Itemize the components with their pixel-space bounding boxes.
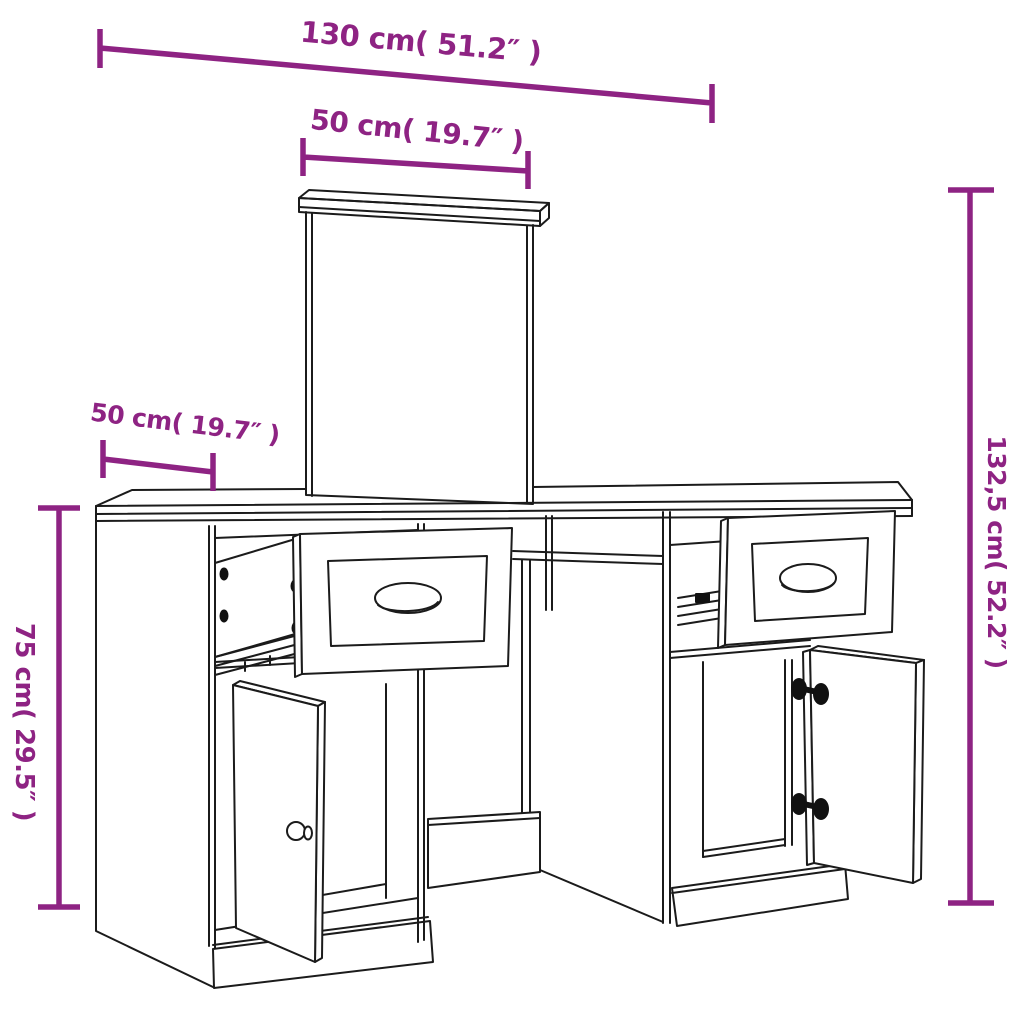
drawer-screw (221, 569, 228, 580)
left-drawer-slides (215, 634, 302, 675)
dim-table-height: 75 cm( 29.5″ ) (9, 508, 80, 907)
dim-overall-width: 130 cm( 51.2″ ) (100, 15, 712, 123)
dim-depth: 50 cm( 19.7″ ) (89, 398, 282, 491)
left-door-panel (233, 685, 318, 962)
dimension-diagram: 130 cm( 51.2″ ) 50 cm( 19.7″ ) 50 cm( 19… (0, 0, 1024, 1024)
dim-line (103, 440, 213, 491)
kneehole-apron (513, 551, 663, 564)
desktop-front-edge (96, 500, 912, 506)
floor-diagonal (540, 870, 663, 922)
desktop-center-seam (546, 516, 552, 610)
right-left-stile (663, 512, 670, 923)
diagram-canvas: 130 cm( 51.2″ ) 50 cm( 19.7″ ) 50 cm( 19… (0, 0, 1024, 1024)
mirror-top-rail-end (540, 203, 549, 226)
left-drawer-side (215, 537, 302, 657)
drawer-screw (221, 611, 228, 622)
left-drawer-box (215, 537, 302, 675)
right-door-panel (810, 650, 916, 883)
hinge-knuckle (792, 679, 806, 699)
right-open-drawer (718, 511, 895, 648)
left-open-door (233, 681, 325, 962)
furniture-drawing (96, 190, 924, 988)
mirror-top-rail-front (299, 198, 540, 226)
door-knob-stem (304, 827, 312, 840)
hinge-knuckle (814, 684, 828, 704)
right-under-top-rail (670, 541, 728, 545)
dim-total-height: 132,5 cm( 52.2″ ) (948, 190, 1011, 903)
mirror-panel (306, 212, 533, 504)
door-knob (287, 822, 305, 840)
dim-label-total-height: 132,5 cm( 52.2″ ) (982, 435, 1011, 668)
dim-line (38, 508, 80, 907)
slide-latch (696, 594, 709, 602)
left-open-drawer (293, 528, 512, 677)
right-interior-bottom (703, 839, 785, 857)
right-center-stile (785, 660, 792, 846)
right-open-door (792, 646, 924, 883)
hinge-knuckle (792, 794, 806, 814)
right-plinth (672, 864, 848, 926)
dim-mirror-width: 50 cm( 19.7″ ) (303, 103, 528, 189)
hinge-knuckle (814, 799, 828, 819)
dim-label-depth: 50 cm( 19.7″ ) (89, 398, 282, 450)
dim-label-mirror-width: 50 cm( 19.7″ ) (309, 103, 525, 158)
dim-label-table-height: 75 cm( 29.5″ ) (9, 623, 39, 821)
mirror (299, 190, 549, 504)
dim-label-overall-width: 130 cm( 51.2″ ) (299, 15, 543, 70)
desktop-band-line (96, 508, 912, 514)
left-side-edge (96, 521, 213, 987)
